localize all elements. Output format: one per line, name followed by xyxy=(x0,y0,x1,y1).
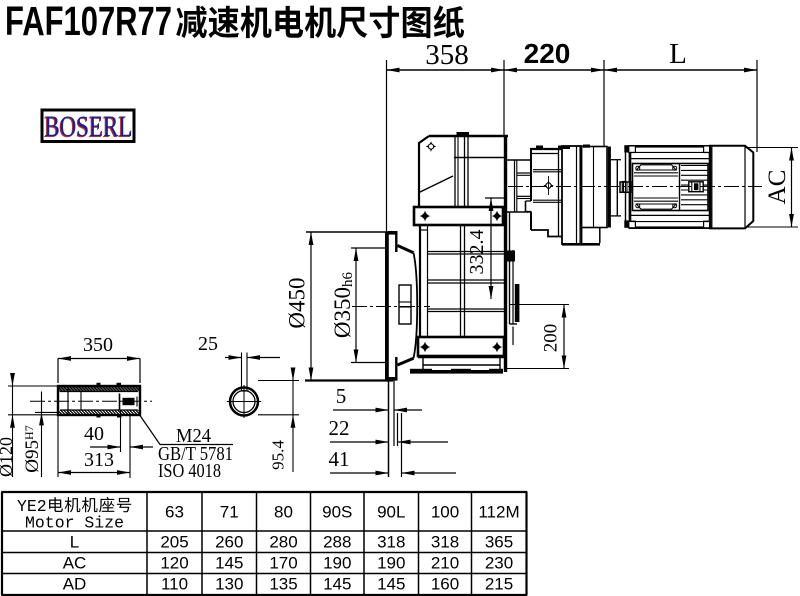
svg-text:Motor Size: Motor Size xyxy=(25,514,124,533)
svg-text:AC: AC xyxy=(63,554,87,573)
svg-text:5: 5 xyxy=(336,384,347,408)
svg-text:145: 145 xyxy=(377,575,405,594)
svg-text:145: 145 xyxy=(215,554,243,573)
svg-text:25: 25 xyxy=(198,333,218,355)
svg-text:100: 100 xyxy=(431,503,459,522)
svg-text:230: 230 xyxy=(485,554,513,573)
svg-text:22: 22 xyxy=(329,416,350,440)
svg-text:365: 365 xyxy=(485,533,513,552)
svg-text:210: 210 xyxy=(431,554,459,573)
svg-text:135: 135 xyxy=(269,575,297,594)
svg-text:AC: AC xyxy=(764,170,791,205)
svg-text:205: 205 xyxy=(160,533,188,552)
svg-text:71: 71 xyxy=(220,503,239,522)
svg-text:332.4: 332.4 xyxy=(466,230,488,275)
svg-text:318: 318 xyxy=(377,533,405,552)
svg-text:215: 215 xyxy=(485,575,513,594)
svg-text:358: 358 xyxy=(425,39,469,71)
svg-text:160: 160 xyxy=(431,575,459,594)
svg-text:112M: 112M xyxy=(478,503,519,522)
svg-text:190: 190 xyxy=(323,554,351,573)
svg-text:FAF107R77: FAF107R77 xyxy=(5,0,172,44)
svg-text:350: 350 xyxy=(83,334,113,356)
svg-text:200: 200 xyxy=(541,324,562,353)
svg-text:40: 40 xyxy=(84,423,104,445)
svg-text:220: 220 xyxy=(524,38,571,69)
svg-text:95.4: 95.4 xyxy=(269,440,288,470)
svg-text:313: 313 xyxy=(84,449,114,471)
svg-text:63: 63 xyxy=(165,503,184,522)
svg-text:Ø120: Ø120 xyxy=(0,437,16,477)
svg-text:41: 41 xyxy=(329,447,350,471)
svg-text:280: 280 xyxy=(269,533,297,552)
svg-text:90S: 90S xyxy=(322,503,352,522)
svg-text:L: L xyxy=(669,38,687,70)
svg-text:80: 80 xyxy=(274,503,293,522)
svg-text:ISO 4018: ISO 4018 xyxy=(158,460,221,482)
svg-text:AD: AD xyxy=(63,575,87,594)
svg-text:318: 318 xyxy=(431,533,459,552)
svg-text:90L: 90L xyxy=(377,503,405,522)
svg-text:110: 110 xyxy=(161,575,188,594)
svg-text:Ø450: Ø450 xyxy=(285,277,310,328)
svg-text:170: 170 xyxy=(269,554,297,573)
svg-text:120: 120 xyxy=(160,554,188,573)
svg-text:288: 288 xyxy=(323,533,351,552)
svg-text:130: 130 xyxy=(215,575,243,594)
svg-text:L: L xyxy=(70,533,79,552)
svg-text:190: 190 xyxy=(377,554,405,573)
svg-text:BOSERL: BOSERL xyxy=(45,110,133,143)
svg-text:260: 260 xyxy=(215,533,243,552)
svg-text:145: 145 xyxy=(323,575,351,594)
